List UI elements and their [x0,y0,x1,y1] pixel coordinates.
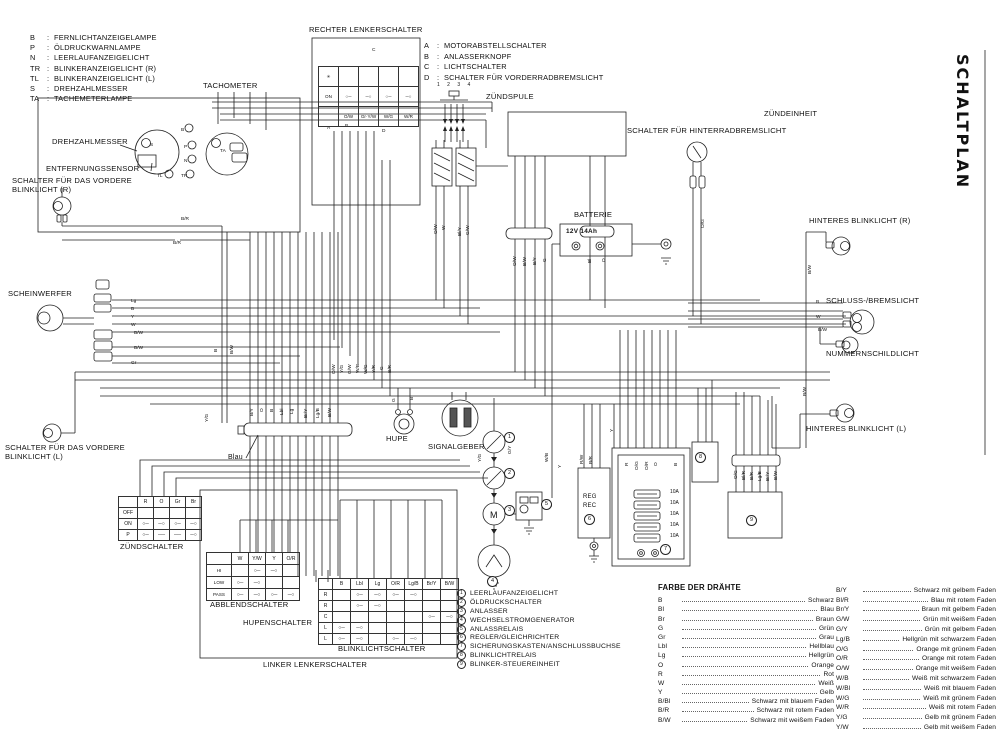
wire-color-row: Br/Y Braun mit gelbem Faden [836,604,996,614]
wire-color-label: O [653,462,659,466]
circled-component-number: 6 [584,514,595,525]
switch-table-cell: ─○ [405,634,423,645]
wiring-diagram-page: STABPNTLTRCABDMB/RB/RLgBYWB/WB/WGrBB/WY/… [0,0,1000,744]
switch-table-cell: ○─ [333,634,351,645]
switch-table-cell [333,590,351,601]
switch-table-cell: Y [266,553,283,565]
blue-connector [244,423,352,436]
wire-color-code: W/G [836,695,863,702]
coil-core [449,91,459,96]
switch-table-cell: ─○ [249,589,266,601]
dotted-leader [863,698,920,700]
label-zuendeinheit: ZÜNDEINHEIT [764,109,817,118]
wire-color-label: C [372,47,376,53]
legend-label: BLINKER-STEUEREINHEIT [470,661,560,668]
circled-component-number: 3 [504,505,515,516]
flasher-relay-box [692,442,718,482]
wire-color-label: O [259,408,265,412]
wire-color-label: O/W [512,256,518,266]
legend-row: S : DREHZAHLMESSER [30,84,157,94]
legend-colon: : [437,52,444,63]
switch-table-cell: ─○ [249,577,266,589]
wire-color-code: G/W [836,616,863,623]
numbered-component-legend: 1 LEERLAUFANZEIGELICHT 2 ÖLDRUCKSCHALTER… [457,589,621,669]
label-reg: REG [583,494,597,500]
fuse-rating: 10A [670,533,679,539]
legend-label: DREHZAHLMESSER [54,84,128,94]
wire-color-code: Bl/R [836,597,863,604]
wire-color-row: Bl/R Blau mit rotem Faden [836,594,996,604]
wire-color-code: R [658,671,682,678]
rear-turn-signal-right-bulb [832,237,850,255]
switch-table-cell [423,590,441,601]
legend-colon: : [47,53,54,63]
wire-color-label: R/W [579,454,585,464]
switch-table-cell: Lg [369,579,387,590]
ignition-switch-table: ROGrBrOFFON○──○○──○P○──────○ [118,496,202,541]
label-batterie: BATTERIE [574,210,612,219]
wire-color-label: R [624,462,630,466]
dotted-leader [863,629,922,631]
wire-color-label: O/G [634,461,640,470]
switch-table-cell: ─○ [351,634,369,645]
wire-color-label: W [441,225,447,230]
legend-colon: : [47,74,54,84]
wire-color-label: B/R [173,240,182,246]
switch-table-cell: Gr [170,497,186,508]
switch-table-cell: ○─ [170,519,186,530]
wire-color-name: Rot [823,671,834,678]
switch-table-cell [186,508,202,519]
switch-legend: A : MOTORABSTELLSCHALTER B : ANLASSERKNO… [424,41,603,83]
legend-label: LEERLAUFANZEIGELICHT [470,590,558,597]
wire-color-label: B/W [229,344,235,354]
switch-table-cell: OFF [119,508,138,519]
wire-color-code: W/Bl [836,685,863,692]
switch-table-cell: R [319,601,333,612]
label-linker-lenkerschalter: LINKER LENKERSCHALTER [263,660,367,669]
legend-key: N [30,53,47,63]
wire-color-row: Gr Grau [658,632,834,641]
legend-label: ÖLDRUCKSCHALTER [470,599,542,606]
wire-color-row: G/Y Grün mit gelbem Faden [836,623,996,633]
oil-lamp [188,141,196,149]
wire-color-code: B/Y [836,587,863,594]
front-turn-signal-right-bulb [53,197,71,215]
circled-component-number: 2 [504,468,515,479]
switch-table-cell: W/R [399,107,419,127]
label-zuendschalter: ZÜNDSCHALTER [120,542,183,551]
wire-color-name: Orange [811,662,834,669]
dotted-leader [682,710,754,712]
legend-label: WECHSELSTROMGENERATOR [470,617,575,624]
numbered-legend-row: 5 ANLASSRELAIS [457,625,621,634]
wire-color-code: O/R [836,655,863,662]
wire-color-label: G [379,366,385,370]
switch-table-cell: ON [119,519,138,530]
legend-colon: : [437,41,444,52]
label-signalgeber: SIGNALGEBER [428,442,485,451]
wire-color-name: Orange mit grünem Faden [916,646,996,653]
legend-label: LEERLAUFANZEIGELICHT [54,53,150,63]
wire-color-row: R Rot [658,669,834,678]
wire-color-name: Orange mit rotem Faden [922,655,996,662]
numbered-legend-row: 4 WECHSELSTROMGENERATOR [457,616,621,625]
switch-table-cell [319,579,333,590]
switch-table-cell: ─○ [186,519,202,530]
switch-table-cell: PASS [207,589,232,601]
dotted-leader [863,619,920,621]
wire-color-legend-title: FARBE DER DRÄHTE [658,583,741,592]
switch-table-cell: ─○ [399,87,419,107]
legend-number-circle: 8 [457,651,466,660]
dotted-leader [682,646,806,648]
fuse-rating: 10A [670,500,679,506]
fuse-rating: 10A [670,489,679,495]
label-rec: REC [583,503,596,509]
wire-color-label: B [213,349,219,352]
switch-table-cell [369,612,387,623]
distance-sensor-tab [138,155,156,167]
wire-color-row: Lg/B Hellgrün mit schwarzem Faden [836,633,996,643]
legend-label: BLINKERANZEIGELICHT (L) [54,74,155,84]
turn-signal-switch-table: BLblLgO/RLg/BBr/YB/WR○──○○──○R○──○C○──○L… [318,578,459,645]
switch-table-cell: Lg/B [405,579,423,590]
turn-signal-control-box [728,492,782,538]
ignition-unit-box [508,112,626,156]
wire-color-code: W [658,680,682,687]
legend-label: TACHEMETERLAMPE [54,94,132,104]
wire-color-label: B/W [134,330,144,336]
switch-table-cell: ── [154,530,170,541]
wire-color-row: B/W Schwarz mit weißem Faden [658,714,834,723]
wire-color-label: B/R [181,216,190,222]
switch-table-cell: ○─ [387,634,405,645]
wire-color-label: Br/Y [765,471,771,481]
circled-component-number: 8 [695,452,706,463]
circled-component-number: 1 [504,432,515,443]
wire-color-row: B/Y Schwarz mit gelbem Faden [836,584,996,594]
wire-color-label: Y/G [339,364,345,373]
wire-color-label: B/W [134,345,144,351]
legend-key: B [424,52,437,63]
legend-label: ÖLDRUCKWARNLAMPE [54,43,141,53]
wire-color-name: Braun [816,616,834,623]
switch-table-cell [339,67,359,87]
wire-color-code: W/R [836,704,863,711]
wire-color-name: Weiß [818,680,834,687]
wire-color-label: TL [157,173,163,179]
label-tail-brake-light: SCHLUSS-/BREMSLICHT [826,296,919,305]
wire-color-code: Br [658,616,682,623]
wire-color-name: Schwarz mit blauem Faden [752,698,834,705]
wire-color-code: O [658,662,682,669]
switch-table-cell: ─○ [369,590,387,601]
switch-table-cell [170,508,186,519]
wire-color-name: Schwarz mit weißem Faden [750,717,834,724]
wire-color-label: B [269,409,275,412]
connector-bank [732,455,780,466]
fuse-box-inner [618,455,684,559]
label-rear-brake-switch: SCHALTER FÜR HINTERRADBREMSLICHT [627,126,786,135]
dotted-leader [863,590,911,592]
wire-color-label: B/W [773,470,779,480]
wire-color-code: B [658,597,682,604]
wire-color-label: B/R [387,364,393,373]
wire-color-row: W/B Weiß mit schwarzem Faden [836,672,996,682]
turn-lamp-left [165,170,173,178]
wire-color-label: B [816,299,819,305]
wire-color-label: B/R [588,455,594,464]
switch-table-cell [333,601,351,612]
switch-table-cell: C [319,612,333,623]
wire-color-label: O/R [644,461,650,470]
legend-key: D [424,73,437,84]
numbered-legend-row: 2 ÖLDRUCKSCHALTER [457,598,621,607]
wire-color-code: G/Y [836,626,863,633]
wire-color-name: Schwarz [808,597,834,604]
wire-color-row: Y Gelb [658,687,834,696]
switch-table-cell [405,623,423,634]
wire-color-label: Lg/B [315,408,321,418]
switch-table-cell [359,67,379,87]
circled-component-number: 9 [746,515,757,526]
switch-table-cell [154,508,170,519]
wire-color-row: G Grün [658,623,834,632]
wire-color-row: Y/W Gelb mit weißem Faden [836,721,996,731]
wire-color-name: Gelb mit weißem Faden [924,724,996,731]
label-front-turn-right: SCHALTER FÜR DAS VORDERE BLINKLICHT (R) [12,176,140,195]
switch-table-cell [423,623,441,634]
wire-color-code: B/W [658,717,682,724]
switch-table-cell: ○─ [351,601,369,612]
wire-color-label: B/W [522,256,528,266]
wire-color-label: W [131,322,136,328]
dotted-leader [682,628,816,630]
wire-color-name: Weiß mit schwarzem Faden [912,675,996,682]
label-rear-turn-right: HINTERES BLINKLICHT (R) [809,216,911,225]
numbered-legend-row: 7 SICHERUNGSKASTEN/ANSCHLUSSBUCHSE [457,642,621,651]
wire-color-name: Grau [819,634,834,641]
dotted-leader [682,720,747,722]
label-hupenschalter: HUPENSCHALTER [243,618,312,627]
wire-color-name: Gelb mit grünem Faden [925,714,996,721]
numbered-legend-row: 6 REGLER/GLEICHRICHTER [457,633,621,642]
dotted-leader [682,655,806,657]
label-entfernungssensor: ENTFERNUNGSSENSOR [46,164,139,173]
wire-color-label: B/Y [249,407,255,416]
dotted-leader [682,674,820,676]
switch-table-cell: ○─ [232,577,249,589]
switch-table-cell: P [119,530,138,541]
switch-table-cell [333,612,351,623]
numbered-legend-row: 8 BLINKLICHTRELAIS [457,651,621,660]
wire-color-name: Schwarz mit rotem Faden [757,707,834,714]
switch-table-cell: ○─ [339,87,359,107]
wire-color-label: B [409,397,415,400]
wire-color-label: B/W [327,407,333,417]
wire-color-name: Braun mit gelbem Faden [922,606,996,613]
switch-table-cell: ─○ [359,87,379,107]
right-switch-table: ✳ON○──○○──○O/WGr·Y/WW/GW/R [318,66,419,127]
switch-table-cell: ○─ [249,565,266,577]
switch-table-cell [423,601,441,612]
legend-key: TA [30,94,47,104]
label-scheinwerfer: SCHEINWERFER [8,289,72,298]
wire-color-code: Lg/B [836,636,863,643]
wire-color-row: B/Bl Schwarz mit blauem Faden [658,696,834,705]
switch-table-cell: ── [170,530,186,541]
switch-table-cell: ─○ [283,589,300,601]
wire-color-label: P [184,144,187,150]
wire-color-label: N [184,158,188,164]
dimmer-switch-table: WY/WYO/RHI○──○LOW○──○PASS○──○○──○ [206,552,300,601]
switch-table-cell: Lbl [351,579,369,590]
horn-symbol [394,414,414,434]
wire-color-name: Hellgrün [809,652,834,659]
wire-color-label: W/B [544,453,550,462]
switch-table-cell: O/W [339,107,359,127]
dotted-leader [863,678,909,680]
wire-color-code: Y [658,689,682,696]
switch-table-cell [441,623,459,634]
switch-table-cell: W [232,553,249,565]
switch-table-cell: ─○ [441,612,459,623]
dotted-leader [863,668,913,670]
wire-color-row: O Orange [658,659,834,668]
switch-table-cell: ─○ [351,623,369,634]
switch-table-cell: Br [186,497,202,508]
switch-table-cell [119,497,138,508]
dotted-leader [863,658,919,660]
front-turn-signal-left-bulb [43,424,61,442]
switch-table-cell: ○─ [351,590,369,601]
wire-color-row: Y/G Gelb mit grünem Faden [836,711,996,721]
switch-table-cell [387,623,405,634]
wire-color-row: W Weiß [658,678,834,687]
wire-color-label: Y/G [204,413,210,422]
wire-color-name: Blau [820,606,834,613]
wire-color-label: Lg [289,408,295,414]
wire-color-row: W/R Weiß mit rotem Faden [836,702,996,712]
wire-color-label: Br/Y [303,408,309,418]
legend-label: REGLER/GLEICHRICHTER [470,634,559,641]
speedometer-dial [206,133,248,175]
legend-row: N : LEERLAUFANZEIGELICHT [30,53,157,63]
wire-color-label: Lg [131,298,137,304]
wire-color-label: D [382,128,386,134]
switch-table-cell: B [333,579,351,590]
legend-key: TL [30,74,47,84]
wire-color-code: Bl [658,606,682,613]
switch-table-cell [441,634,459,645]
legend-key: P [30,43,47,53]
legend-row: C : LICHTSCHALTER [424,62,603,73]
switch-table-cell: O/R [387,579,405,590]
switch-table-cell: W/G [379,107,399,127]
switch-table-cell: ─○ [369,601,387,612]
wire-color-label: O/W [331,364,337,374]
legend-label: ANLASSRELAIS [470,626,523,633]
switch-table-cell [283,565,300,577]
battery-rating: 12V 14Ah [566,228,597,235]
wire-color-row: G/W Grün mit weißem Faden [836,613,996,623]
legend-label: MOTORABSTELLSCHALTER [444,41,547,52]
wire-color-name: Hellgrün mit schwarzem Faden [902,636,996,643]
wire-color-name: Weiß mit grünem Faden [923,695,996,702]
wire-color-row: Br Braun [658,613,834,622]
wire-color-label: Lg/B [757,471,763,481]
highbeam-lamp [185,124,193,132]
wire-color-name: Weiß mit rotem Faden [929,704,996,711]
switch-table-cell [283,577,300,589]
dotted-leader [863,649,913,651]
switch-table-cell: B/W [441,579,459,590]
fuse-rating: 10A [670,511,679,517]
wire-color-row: B Schwarz [658,595,834,604]
switch-table-cell: L [319,623,333,634]
legend-key: S [30,84,47,94]
legend-label: ANLASSER [470,608,508,615]
switch-table-cell [399,67,419,87]
switch-table-cell [405,612,423,623]
wire-color-label: Y [557,464,563,468]
wire-color-label: TR [181,173,188,179]
wire-color-name: Orange mit weißem Faden [916,665,996,672]
dotted-leader [682,600,805,602]
label-abblendschalter: ABBLENDSCHALTER [210,600,288,609]
wire-color-code: Y/G [836,714,863,721]
wire-color-label: W [816,314,821,320]
switch-table-cell: ○─ [423,612,441,623]
legend-row: TA : TACHEMETERLAMPE [30,94,157,104]
switch-table-cell [351,612,369,623]
switch-table-cell: ○─ [266,589,283,601]
wire-color-label: Y/R [371,364,377,373]
wire-color-name: Gelb [820,689,834,696]
wire-color-code: G [658,625,682,632]
legend-row: A : MOTORABSTELLSCHALTER [424,41,603,52]
legend-row: B : FERNLICHTANZEIGELAMPE [30,33,157,43]
neutral-lamp [188,155,196,163]
wire-color-name: Grün mit weißem Faden [923,616,996,623]
wire-color-label: B/Y [532,256,538,265]
dotted-leader [863,688,921,690]
switch-table-cell: ○─ [333,623,351,634]
dotted-leader [863,717,922,719]
wire-color-label: W/B [355,364,361,373]
wire-color-label: B/W [818,327,828,333]
switch-table-cell [232,565,249,577]
legend-number-circle: 9 [457,660,466,669]
switch-table-cell [423,634,441,645]
wire-color-row: O/G Orange mit grünem Faden [836,643,996,653]
wire-color-label: TA [220,148,227,154]
dotted-leader [863,727,921,729]
legend-colon: : [47,33,54,43]
switch-table-cell [207,553,232,565]
label-tachometer: TACHOMETER [203,81,258,90]
label-blau-connector: Blau [228,454,243,461]
connector [506,228,552,239]
numbered-legend-row: 1 LEERLAUFANZEIGELICHT [457,589,621,598]
switch-table-cell: O [154,497,170,508]
label-rear-turn-left: HINTERES BLINKLICHT (L) [806,424,906,433]
wire-color-row: W/G Weiß mit grünem Faden [836,692,996,702]
switch-table-cell [266,577,283,589]
numbered-legend-row: 3 ANLASSER [457,607,621,616]
wire-color-label: O/G [700,219,706,228]
